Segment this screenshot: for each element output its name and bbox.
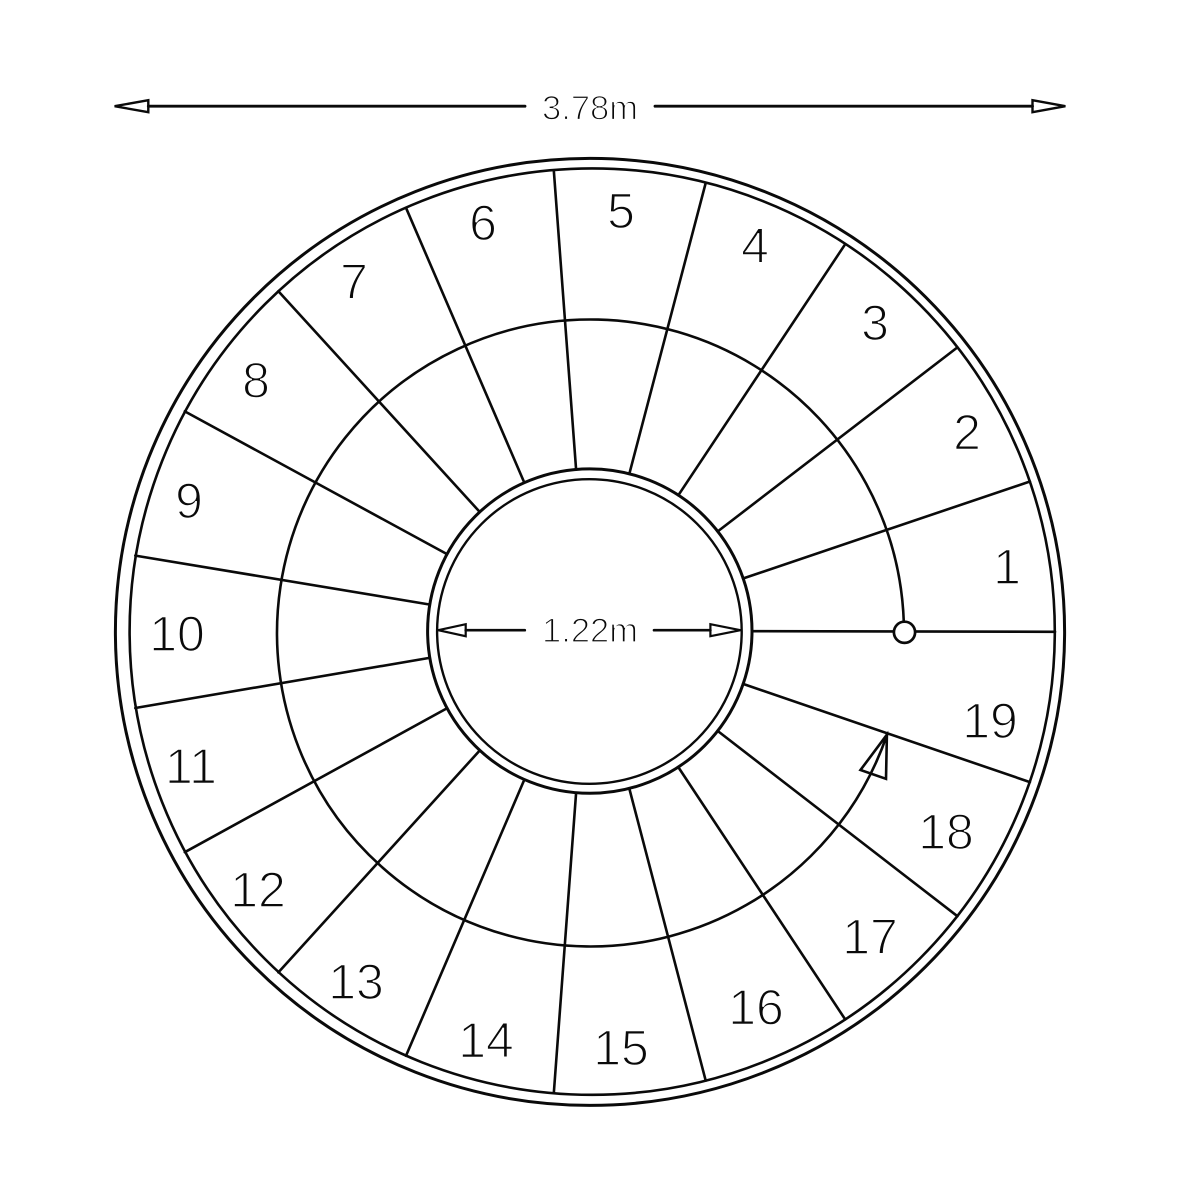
- svg-text:10: 10: [149, 606, 205, 662]
- svg-text:7: 7: [340, 254, 368, 310]
- svg-text:6: 6: [469, 195, 497, 251]
- svg-text:2: 2: [953, 405, 981, 461]
- svg-text:8: 8: [242, 353, 270, 409]
- svg-text:1: 1: [993, 539, 1021, 595]
- svg-text:13: 13: [328, 954, 384, 1010]
- svg-text:11: 11: [165, 739, 217, 795]
- svg-text:14: 14: [458, 1013, 514, 1069]
- svg-text:5: 5: [607, 183, 635, 239]
- svg-text:3: 3: [861, 295, 889, 351]
- svg-text:19: 19: [962, 693, 1018, 749]
- svg-text:15: 15: [593, 1020, 649, 1076]
- svg-text:3.78m: 3.78m: [542, 90, 638, 128]
- svg-text:18: 18: [918, 804, 974, 860]
- svg-text:12: 12: [230, 862, 286, 918]
- svg-text:9: 9: [175, 473, 203, 529]
- svg-text:4: 4: [741, 218, 769, 274]
- svg-text:1.22m: 1.22m: [542, 612, 638, 650]
- svg-text:16: 16: [728, 980, 784, 1036]
- svg-text:17: 17: [842, 909, 898, 965]
